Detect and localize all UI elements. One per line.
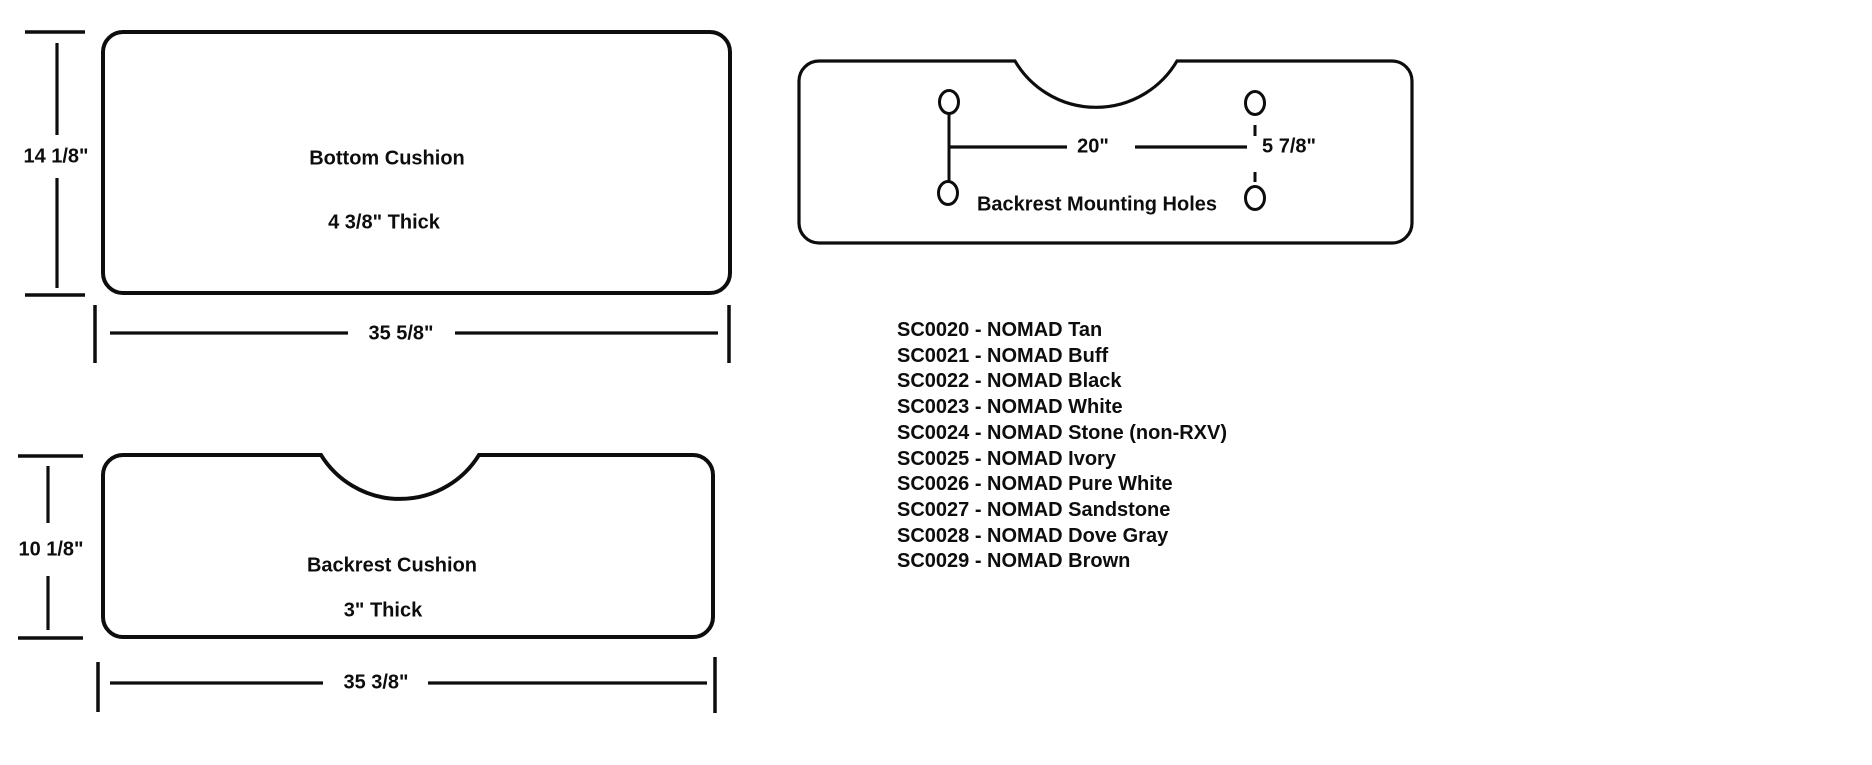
- list-item: SC0023 - NOMAD White: [897, 395, 1227, 421]
- parts-color-list: SC0020 - NOMAD Tan SC0021 - NOMAD Buff S…: [897, 318, 1227, 575]
- hole-offset-dim: 5 7/8": [1262, 136, 1316, 159]
- cushion-spec-diagram: 14 1/8" Bottom Cushion 4 3/8" Thick 35 5…: [0, 0, 1872, 765]
- list-item: SC0022 - NOMAD Black: [897, 369, 1227, 395]
- list-item: SC0021 - NOMAD Buff: [897, 344, 1227, 370]
- bottom-cushion-width-dim: 35 5/8": [368, 323, 433, 346]
- backrest-cushion-height-dim: 10 1/8": [18, 539, 83, 562]
- bottom-cushion-height-dim: 14 1/8": [23, 146, 88, 169]
- backrest-cushion-width-dim: 35 3/8": [343, 672, 408, 695]
- hole-spacing-dim: 20": [1077, 136, 1109, 159]
- list-item: SC0020 - NOMAD Tan: [897, 318, 1227, 344]
- list-item: SC0027 - NOMAD Sandstone: [897, 498, 1227, 524]
- list-item: SC0026 - NOMAD Pure White: [897, 472, 1227, 498]
- bottom-cushion-name: Bottom Cushion: [309, 148, 465, 171]
- mounting-holes-caption: Backrest Mounting Holes: [977, 194, 1217, 217]
- list-item: SC0024 - NOMAD Stone (non-RXV): [897, 421, 1227, 447]
- bottom-cushion-shape: [25, 32, 730, 363]
- backrest-cushion-name: Backrest Cushion: [307, 555, 477, 578]
- list-item: SC0028 - NOMAD Dove Gray: [897, 524, 1227, 550]
- list-item: SC0025 - NOMAD Ivory: [897, 447, 1227, 473]
- bottom-cushion-thickness: 4 3/8" Thick: [328, 212, 440, 235]
- backrest-cushion-thickness: 3" Thick: [344, 600, 422, 623]
- list-item: SC0029 - NOMAD Brown: [897, 549, 1227, 575]
